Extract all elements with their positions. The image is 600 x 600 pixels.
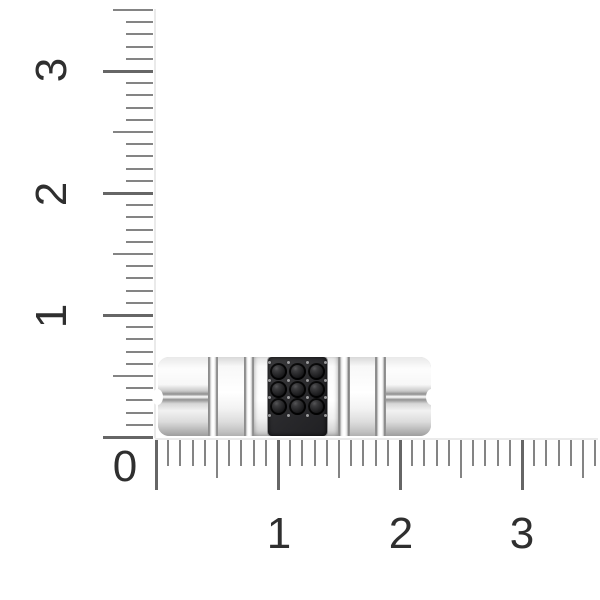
horizontal-ruler-label: 1: [267, 512, 291, 556]
vertical-ruler-tick: [126, 119, 153, 121]
ring-left-lobe: [158, 357, 208, 436]
horizontal-ruler-tick: [350, 440, 352, 466]
vertical-ruler-tick: [103, 192, 153, 195]
horizontal-ruler-tick: [362, 440, 364, 466]
horizontal-ruler-tick: [314, 440, 316, 466]
prong-dot: [306, 396, 309, 399]
pave-setting: [268, 357, 327, 436]
vertical-ruler-tick: [126, 424, 153, 426]
horizontal-ruler-tick: [582, 440, 584, 478]
vertical-ruler-tick: [126, 399, 153, 401]
horizontal-ruler-tick: [167, 440, 169, 466]
black-stone: [308, 398, 325, 415]
prong-dot: [287, 396, 290, 399]
ring-rib: [208, 357, 218, 436]
vertical-ruler-tick: [126, 58, 153, 60]
horizontal-ruler-tick: [265, 440, 267, 466]
vertical-ruler-tick: [103, 436, 153, 439]
vertical-ruler-tick: [113, 9, 153, 11]
black-stone: [289, 398, 306, 415]
horizontal-ruler-tick: [155, 440, 158, 490]
prong-dot: [287, 414, 290, 417]
horizontal-ruler-tick: [289, 440, 291, 466]
vertical-ruler-tick: [126, 412, 153, 414]
ruler-zero-label: 0: [113, 445, 137, 489]
vertical-ruler-tick: [126, 277, 153, 279]
horizontal-ruler-tick: [253, 440, 255, 466]
prong-dot: [268, 361, 271, 364]
horizontal-ruler-tick: [277, 440, 280, 490]
horizontal-ruler-label: 3: [510, 512, 534, 556]
ring-rib: [375, 357, 386, 436]
vertical-ruler-tick: [126, 216, 153, 218]
vertical-ruler-tick: [103, 314, 153, 317]
vertical-ruler-tick: [126, 302, 153, 304]
vertical-ruler-tick: [126, 21, 153, 23]
vertical-ruler-tick: [126, 363, 153, 365]
horizontal-ruler-tick: [484, 440, 486, 466]
ring-rib: [244, 357, 254, 436]
vertical-ruler-tick: [103, 70, 153, 73]
horizontal-ruler-tick: [179, 440, 181, 466]
ring-band: [218, 357, 244, 436]
horizontal-ruler-tick: [558, 440, 560, 466]
vertical-ruler-tick: [126, 33, 153, 35]
horizontal-ruler-tick: [240, 440, 242, 466]
black-stone: [289, 363, 306, 380]
horizontal-ruler-tick: [228, 440, 230, 466]
horizontal-ruler-tick: [411, 440, 413, 466]
horizontal-ruler-tick: [594, 440, 596, 466]
horizontal-ruler-tick: [460, 440, 462, 478]
horizontal-ruler-tick: [192, 440, 194, 466]
prong-dot: [287, 379, 290, 382]
black-stone: [270, 398, 287, 415]
horizontal-ruler-tick: [338, 440, 340, 478]
prong-dot: [268, 414, 271, 417]
horizontal-ruler-tick: [497, 440, 499, 466]
vertical-ruler-tick: [126, 351, 153, 353]
prong-dot: [268, 379, 271, 382]
vertical-ruler-tick: [126, 338, 153, 340]
vertical-ruler-tick: [126, 46, 153, 48]
horizontal-ruler-tick: [301, 440, 303, 466]
horizontal-ruler-tick: [533, 440, 535, 466]
prong-dot: [306, 414, 309, 417]
horizontal-ruler-tick: [399, 440, 402, 490]
horizontal-ruler-tick: [448, 440, 450, 466]
prong-dot: [268, 396, 271, 399]
horizontal-ruler-tick: [436, 440, 438, 466]
prong-dot: [324, 379, 327, 382]
vertical-ruler-label: 1: [30, 304, 74, 328]
horizontal-ruler-tick: [472, 440, 474, 466]
horizontal-ruler-tick: [570, 440, 572, 466]
horizontal-ruler-tick: [204, 440, 206, 466]
black-stone: [308, 381, 325, 398]
vertical-ruler-tick: [126, 290, 153, 292]
vertical-ruler-tick: [113, 253, 153, 255]
ring-right-lobe: [386, 357, 431, 436]
scene: 3211230: [0, 0, 600, 600]
ring-rib: [338, 357, 350, 436]
ring-notch-left: [152, 389, 163, 405]
horizontal-ruler-tick: [423, 440, 425, 466]
ring-notch-right: [426, 389, 437, 405]
horizontal-ruler-tick: [521, 440, 524, 490]
vertical-ruler-tick: [126, 82, 153, 84]
vertical-ruler-label: 2: [30, 182, 74, 206]
vertical-ruler-tick: [126, 107, 153, 109]
prong-dot: [306, 361, 309, 364]
prong-dot: [287, 361, 290, 364]
horizontal-ruler-label: 2: [389, 512, 413, 556]
vertical-ruler-tick: [126, 265, 153, 267]
horizontal-ruler-tick: [509, 440, 511, 466]
ring: [158, 357, 431, 436]
horizontal-ruler-tick: [387, 440, 389, 466]
black-stone: [270, 381, 287, 398]
ring-band: [350, 357, 375, 436]
prong-dot: [324, 414, 327, 417]
vertical-ruler-tick: [126, 229, 153, 231]
prong-dot: [324, 361, 327, 364]
horizontal-ruler-tick: [326, 440, 328, 466]
vertical-ruler-tick: [113, 131, 153, 133]
horizontal-ruler-tick: [545, 440, 547, 466]
vertical-ruler-label: 3: [30, 58, 74, 82]
prong-dot: [306, 379, 309, 382]
vertical-ruler-tick: [126, 180, 153, 182]
vertical-ruler-tick: [126, 94, 153, 96]
horizontal-ruler-tick: [216, 440, 218, 478]
black-stone: [289, 381, 306, 398]
black-stone: [270, 363, 287, 380]
vertical-ruler-tick: [126, 143, 153, 145]
black-stone: [308, 363, 325, 380]
vertical-ruler-tick: [126, 387, 153, 389]
vertical-ruler-tick: [126, 241, 153, 243]
vertical-ruler-tick: [126, 204, 153, 206]
horizontal-ruler-tick: [375, 440, 377, 466]
vertical-ruler-tick: [126, 168, 153, 170]
vertical-ruler-edge: [154, 9, 156, 438]
vertical-ruler-tick: [126, 155, 153, 157]
vertical-ruler-tick: [113, 375, 153, 377]
vertical-ruler-tick: [126, 326, 153, 328]
prong-dot: [324, 396, 327, 399]
